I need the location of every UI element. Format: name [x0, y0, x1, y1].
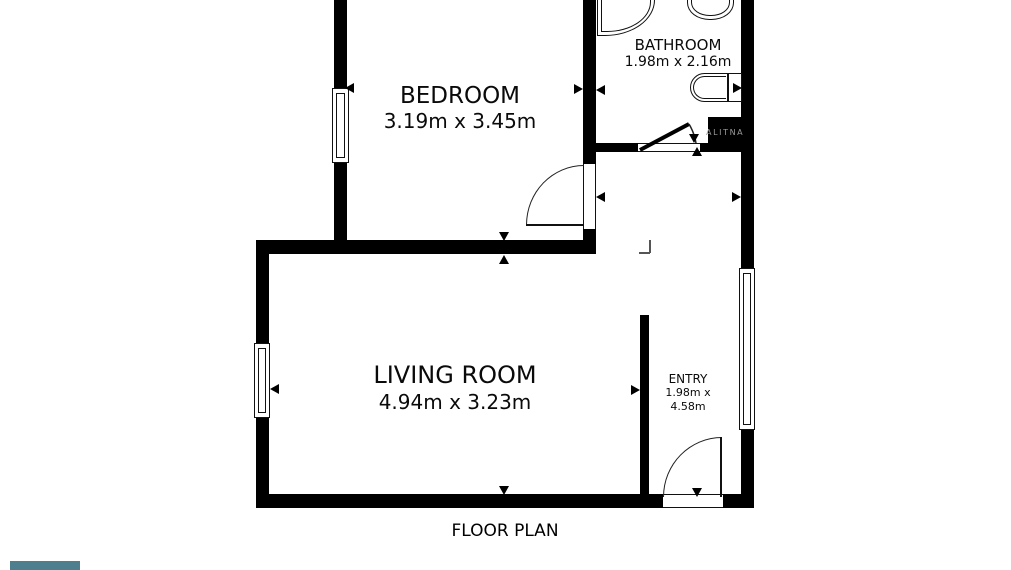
living-room-label: LIVING ROOM 4.94m x 3.23m	[330, 362, 580, 415]
page-title: FLOOR PLAN	[405, 521, 605, 541]
measure-arrow-icon	[733, 83, 742, 93]
bedroom-dimensions: 3.19m x 3.45m	[335, 109, 585, 134]
measure-arrow-icon	[692, 488, 702, 497]
entry-name: ENTRY	[648, 372, 728, 386]
wall-outer-right	[741, 0, 754, 508]
measure-arrow-icon	[499, 486, 509, 495]
shower-tray-inner	[601, 0, 651, 32]
measure-arrow-icon	[732, 192, 741, 202]
entry-label: ENTRY 1.98m x 4.58m	[648, 372, 728, 413]
bathroom-label: BATHROOM 1.98m x 2.16m	[595, 36, 761, 71]
sink-inner	[691, 0, 730, 16]
measure-arrow-icon	[499, 232, 509, 241]
measure-arrow-icon	[270, 384, 279, 394]
measure-arrow-icon	[596, 85, 605, 95]
living-room-dimensions: 4.94m x 3.23m	[330, 389, 580, 415]
window-pane	[743, 273, 751, 425]
living-room-window	[254, 343, 270, 418]
measure-arrow-icon	[499, 255, 509, 264]
measure-arrow-icon	[692, 147, 702, 156]
bathroom-dimensions: 1.98m x 2.16m	[595, 54, 761, 71]
bedroom-door-leaf	[526, 224, 584, 226]
bedroom-name: BEDROOM	[335, 83, 585, 109]
bedroom-label: BEDROOM 3.19m x 3.45m	[335, 83, 585, 134]
bathtub-divider	[727, 74, 729, 101]
entry-door-leaf	[720, 437, 722, 497]
floor-plan-canvas: ALITNA BEDROOM 3.	[0, 0, 1011, 570]
entry-window	[739, 268, 755, 430]
sink	[687, 0, 734, 20]
entry-corner-mark-h	[639, 252, 650, 254]
watermark-text: ALITNA	[706, 128, 750, 137]
measure-arrow-icon	[689, 134, 699, 143]
bedroom-door-opening	[583, 164, 596, 229]
bathroom-name: BATHROOM	[595, 36, 761, 54]
accent-swatch	[10, 561, 80, 570]
entry-dimensions-line1: 1.98m x	[648, 386, 728, 400]
window-pane	[258, 348, 266, 413]
measure-arrow-icon	[596, 192, 605, 202]
measure-arrow-icon	[631, 385, 640, 395]
living-room-name: LIVING ROOM	[330, 362, 580, 389]
entry-dimensions-line2: 4.58m	[648, 400, 728, 414]
wall-living-top	[256, 240, 596, 254]
bedroom-door-swing	[526, 165, 584, 225]
shower-tray	[597, 0, 655, 36]
bathtub-inner	[693, 76, 726, 99]
